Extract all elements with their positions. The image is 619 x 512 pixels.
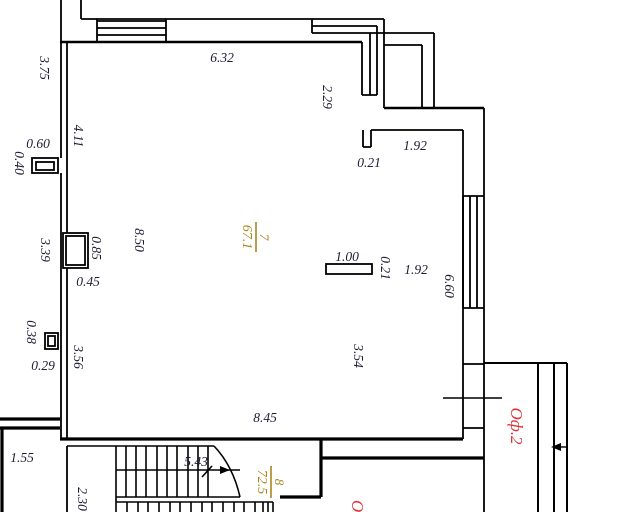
dim-6-60: 6.60 xyxy=(442,274,457,298)
floor-plan: 3.75 6.32 2.29 1.92 0.21 4.11 0.60 0.40 … xyxy=(0,0,619,512)
dim-8-45: 8.45 xyxy=(253,410,277,425)
dim-1-55: 1.55 xyxy=(10,450,34,465)
dim-0-21-mid: 0.21 xyxy=(378,256,393,280)
window-left-inner xyxy=(36,162,54,170)
staircase xyxy=(67,446,273,512)
dim-1-00: 1.00 xyxy=(335,249,359,264)
windows xyxy=(32,19,502,398)
dim-4-11: 4.11 xyxy=(71,125,86,148)
wall-bottom-left-corridor xyxy=(0,419,60,512)
dim-3-75: 3.75 xyxy=(37,55,52,80)
room-label-7: 7 67.1 xyxy=(239,222,272,252)
partition-block xyxy=(326,264,372,274)
dim-3-39: 3.39 xyxy=(38,237,53,262)
room-label-8: 8 72.5 xyxy=(254,466,287,498)
office-label-partial: Оф xyxy=(348,500,367,512)
shaft-walls xyxy=(384,33,434,108)
wall-top-left xyxy=(61,0,81,42)
dim-0-21-top: 0.21 xyxy=(357,155,381,170)
window-small-inner xyxy=(48,336,55,346)
dim-2-29: 2.29 xyxy=(320,85,335,109)
niche-inner xyxy=(66,236,85,265)
dim-0-45: 0.45 xyxy=(76,274,100,289)
dim-6-32: 6.32 xyxy=(210,50,234,65)
stair-break-curve xyxy=(214,446,240,497)
walls-medium xyxy=(60,42,484,108)
wall-right xyxy=(463,108,484,512)
dim-3-56: 3.56 xyxy=(71,344,86,369)
room-8-number: 8 xyxy=(272,479,287,486)
walls-thin xyxy=(61,0,484,512)
window-top xyxy=(97,19,166,42)
dim-1-92-mid: 1.92 xyxy=(404,262,428,277)
room-7-area: 67.1 xyxy=(239,225,254,250)
stair-steps-lower xyxy=(127,502,273,512)
dim-0-85: 0.85 xyxy=(89,236,104,260)
dim-0-60: 0.60 xyxy=(26,136,50,151)
dim-0-40: 0.40 xyxy=(12,151,27,175)
floor-plan-svg: 3.75 6.32 2.29 1.92 0.21 4.11 0.60 0.40 … xyxy=(0,0,619,512)
room-7-number: 7 xyxy=(257,234,272,241)
dim-8-50: 8.50 xyxy=(132,228,147,252)
dim-0-38: 0.38 xyxy=(24,320,39,344)
dim-0-29: 0.29 xyxy=(31,358,55,373)
office-label-of2: Оф.2 xyxy=(507,407,526,445)
dimension-labels: 3.75 6.32 2.29 1.92 0.21 4.11 0.60 0.40 … xyxy=(10,50,457,511)
dim-3-54: 3.54 xyxy=(351,343,366,368)
dim-2-30: 2.30 xyxy=(75,487,90,511)
window-right xyxy=(463,196,477,308)
walls-thick xyxy=(0,419,484,512)
dim-1-92-top: 1.92 xyxy=(403,138,427,153)
annex-arrow-head xyxy=(551,443,561,451)
dim-5-43: 5.43 xyxy=(184,454,208,469)
walls-lower-room xyxy=(280,439,484,497)
room-8-area: 72.5 xyxy=(254,470,269,495)
